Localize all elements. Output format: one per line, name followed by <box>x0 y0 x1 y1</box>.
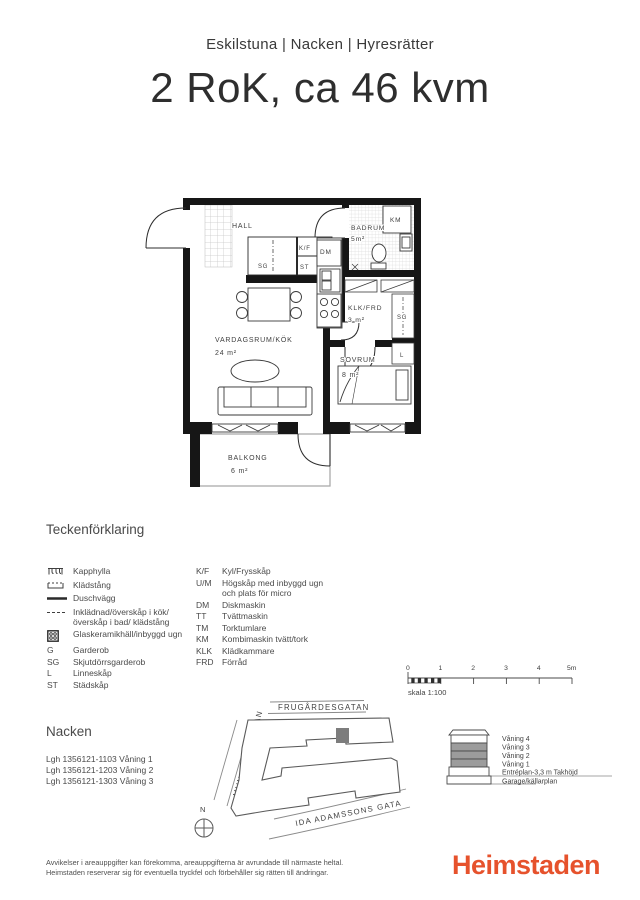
legend-label: Kapphylla <box>73 566 195 577</box>
legend-abbr: KLK <box>196 646 222 657</box>
legend-label: Klädkammare <box>222 646 344 657</box>
legend-abbr: DM <box>196 600 222 611</box>
kf-label: K/F <box>299 246 311 252</box>
legend-abbr: KM <box>196 634 222 645</box>
apartment-list: Lgh 1356121-1103 Våning 1 Lgh 1356121-12… <box>46 754 153 787</box>
coffee-table <box>231 360 279 382</box>
location-heading: Nacken <box>46 724 92 739</box>
dining-table <box>237 288 302 321</box>
legend-label: Klädstång <box>73 580 195 591</box>
sg-right-label: SG <box>397 315 407 321</box>
sofa <box>218 387 312 415</box>
elevation-floor-label: Garage/källarplan <box>502 779 557 786</box>
site-map: FRUGÅRDESGATAN MUNKTELLSGATAN IDA ADAMSS… <box>186 688 442 852</box>
legend-label: Diskmaskin <box>222 600 344 611</box>
page-title: 2 RoK, ca 46 kvm <box>0 64 640 112</box>
legend-right-column: K/FKyl/Frysskåp U/MHögskåp med inbyggd u… <box>196 566 344 669</box>
legend-label: Städskåp <box>73 680 195 691</box>
sovrum-area: 8 m² <box>342 372 359 379</box>
compass-north-label: N <box>200 805 205 814</box>
legend-abbr: G <box>47 645 73 656</box>
scale-tick-5: 5m <box>567 665 577 672</box>
legend-abbr: K/F <box>196 566 222 577</box>
apartment-list-item: Lgh 1356121-1103 Våning 1 <box>46 754 153 765</box>
scale-tick-2: 2 <box>471 665 475 672</box>
floorplan-document-page: Eskilstuna | Nacken | Hyresrätter 2 RoK,… <box>0 0 640 900</box>
linen-label: L <box>400 353 404 359</box>
legend-abbr: ST <box>47 680 73 691</box>
footer-disclaimer: Avvikelser i areauppgifter kan förekomma… <box>46 858 376 877</box>
vardagsrum-area: 24 m² <box>215 350 237 357</box>
building-elevation: Våning 4 Våning 3 Våning 2 Våning 1 Entr… <box>446 722 618 804</box>
legend-label: Garderob <box>73 645 195 656</box>
scale-tick-1: 1 <box>439 665 443 672</box>
legend-label: Kyl/Frysskåp <box>222 566 344 577</box>
street-label-frugardesgatan: FRUGÅRDESGATAN <box>278 703 369 712</box>
legend-label: Skjutdörrsgarderob <box>73 657 195 668</box>
kapphylla-icon <box>47 566 73 579</box>
st-label: ST <box>300 265 309 271</box>
heimstaden-logo: Heimstaden <box>452 850 600 881</box>
apartment-list-item: Lgh 1356121-1303 Våning 3 <box>46 776 153 787</box>
building-outline <box>231 718 400 816</box>
scale-tick-0: 0 <box>406 665 410 672</box>
legend-abbr: TM <box>196 623 222 634</box>
elevation-floor-label: Våning 2 <box>502 752 530 760</box>
klk-label: KLK/FRD <box>348 305 382 312</box>
apartment-list-item: Lgh 1356121-1203 Våning 2 <box>46 765 153 776</box>
legend-row: ST Städskåp <box>47 680 195 691</box>
hall-label: HALL <box>232 223 253 230</box>
legend-label: Tvättmaskin <box>222 611 344 622</box>
disclaimer-line: Avvikelser i areauppgifter kan förekomma… <box>46 858 376 868</box>
vardagsrum-label: VARDAGSRUM/KÖK <box>215 336 293 344</box>
duschvagg-line-icon <box>47 593 73 606</box>
scale-tick-3: 3 <box>504 665 508 672</box>
legend-row: Duschvägg <box>47 593 195 606</box>
legend-abbr: U/M <box>196 578 222 589</box>
sovrum-label: SOVRUM <box>340 357 376 364</box>
compass-north-icon <box>195 819 213 837</box>
elevation-floor-label: Entréplan-3,3 m Takhöjd <box>502 770 578 777</box>
legend-label: Förråd <box>222 657 344 668</box>
legend-abbr: FRD <box>196 657 222 668</box>
apartment-location-marker <box>336 728 349 743</box>
legend-heading: Teckenförklaring <box>46 522 144 537</box>
legend-label: Inklädnad/överskåp i kök/överskåp i bad/… <box>73 607 195 628</box>
overhead-cabinets <box>345 280 414 292</box>
legend-label: Duschvägg <box>73 593 195 604</box>
inkladnad-dashed-line-icon <box>47 607 73 620</box>
legend-row: G Garderob <box>47 645 195 656</box>
legend-row: SG Skjutdörrsgarderob <box>47 657 195 668</box>
sg-hall-label: SG <box>258 264 268 270</box>
legend-left-column: Kapphylla Klädstång Duschvägg Inklädnad/… <box>47 566 195 691</box>
breadcrumb: Eskilstuna | Nacken | Hyresrätter <box>0 36 640 53</box>
floor-plan-drawing: HALL BADRUM 5m² KM DM K/F ST SG KLK/FRD … <box>140 190 426 504</box>
legend-row: Glaskeramikhäll/inbyggd ugn <box>47 629 195 645</box>
legend-row: L Linneskåp <box>47 668 195 679</box>
legend-label: Glaskeramikhäll/inbyggd ugn <box>73 629 195 640</box>
scale-tick-4: 4 <box>537 665 541 672</box>
dm-label: DM <box>320 249 332 256</box>
klk-area: 3 m² <box>348 317 365 324</box>
legend-abbr: L <box>47 668 73 679</box>
balkong-label: BALKONG <box>228 455 267 462</box>
elevation-floor-label: Våning 1 <box>502 761 530 769</box>
kladstang-icon <box>47 580 73 593</box>
legend-row: Kapphylla <box>47 566 195 579</box>
legend-abbr: SG <box>47 657 73 668</box>
legend-label: Linneskåp <box>73 668 195 679</box>
disclaimer-line: Heimstaden reserverar sig för eventuella… <box>46 868 376 878</box>
glaskeramikhall-icon <box>47 629 73 645</box>
balkong-area: 6 m² <box>231 468 248 475</box>
window <box>212 424 405 432</box>
legend-abbr: TT <box>196 611 222 622</box>
legend-label: Kombimaskin tvätt/tork <box>222 634 344 645</box>
elevation-floor-label: Våning 4 <box>502 735 530 743</box>
elevation-floor-label: Våning 3 <box>502 744 530 752</box>
hall-entry-mat <box>205 205 232 267</box>
legend-label: Torktumlare <box>222 623 344 634</box>
km-label: KM <box>390 217 401 224</box>
legend-row: Klädstång <box>47 580 195 593</box>
badrum-area: 5m² <box>351 236 365 243</box>
legend-row: Inklädnad/överskåp i kök/överskåp i bad/… <box>47 607 195 628</box>
legend-label: Högskåp med inbyggd ugn och plats för mi… <box>222 578 334 599</box>
badrum-label: BADRUM <box>351 225 385 232</box>
